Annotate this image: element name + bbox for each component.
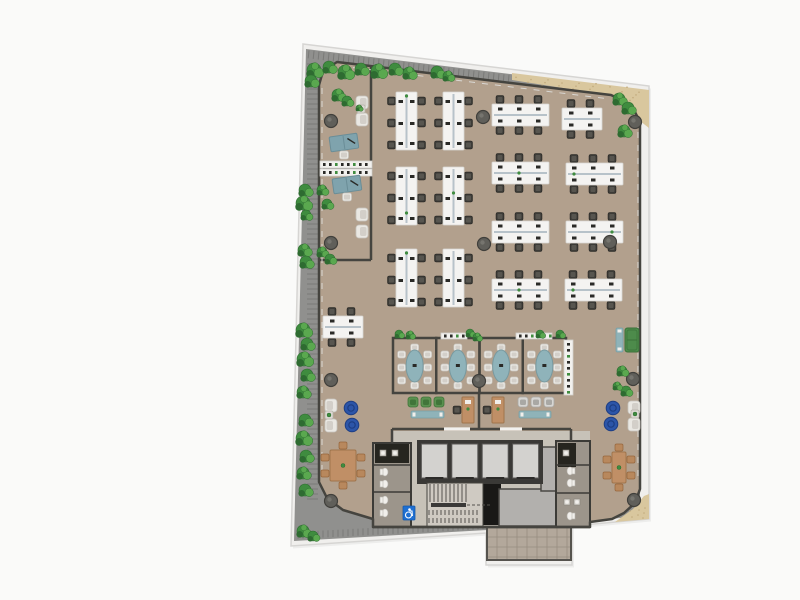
desk-bench [492,154,549,193]
elevator-bank [417,440,543,484]
lounge-armchair [325,399,337,412]
elevator-car [482,444,508,478]
service-gray-room [499,489,560,526]
desk-bench [388,249,426,307]
elevator-car [421,444,447,478]
stairwell [427,483,490,527]
desk-bench [435,249,473,307]
bench [616,328,623,352]
elevator-car [452,444,478,478]
ottoman [606,401,620,415]
credenza [516,333,552,339]
floor-plan [0,0,800,600]
bench [411,411,444,418]
ottoman [344,401,358,415]
structural-column [477,111,490,124]
ottoman [345,418,359,432]
terrace [487,527,571,560]
side-table [325,411,333,419]
lounge-armchair [356,225,368,238]
structural-column [325,374,338,387]
desk-bench [566,155,623,194]
visitor-chairs [408,397,444,407]
credenza [320,169,372,176]
credenza [320,161,372,168]
structural-column [628,494,641,507]
desk-bench [388,167,426,225]
structural-column [325,495,338,508]
structural-column [629,116,642,129]
desk-bench [388,92,426,150]
desk-bench [435,167,473,225]
structural-column [325,115,338,128]
sofa [625,328,639,352]
desk-bench [492,96,549,135]
desk-bench [492,271,549,310]
accessible-sign [403,506,415,520]
lounge-armchair [628,418,640,431]
desk-bench [435,92,473,150]
elevator-car [513,444,539,478]
credenza [441,333,467,339]
desk-bench [492,213,549,252]
lounge-armchair [356,113,368,126]
desk-bench [565,271,622,310]
lounge-armchair [325,419,337,432]
bench [519,411,551,418]
ottoman [604,417,618,431]
side-table [631,410,639,418]
structural-column [604,236,617,249]
structural-column [478,238,491,251]
lounge-armchair [356,208,368,221]
structural-column [325,237,338,250]
credenza [564,340,573,395]
visitor-chairs [518,397,554,407]
wc-right [556,441,590,527]
structural-column [473,375,486,388]
floor-plan-canvas [0,0,800,600]
